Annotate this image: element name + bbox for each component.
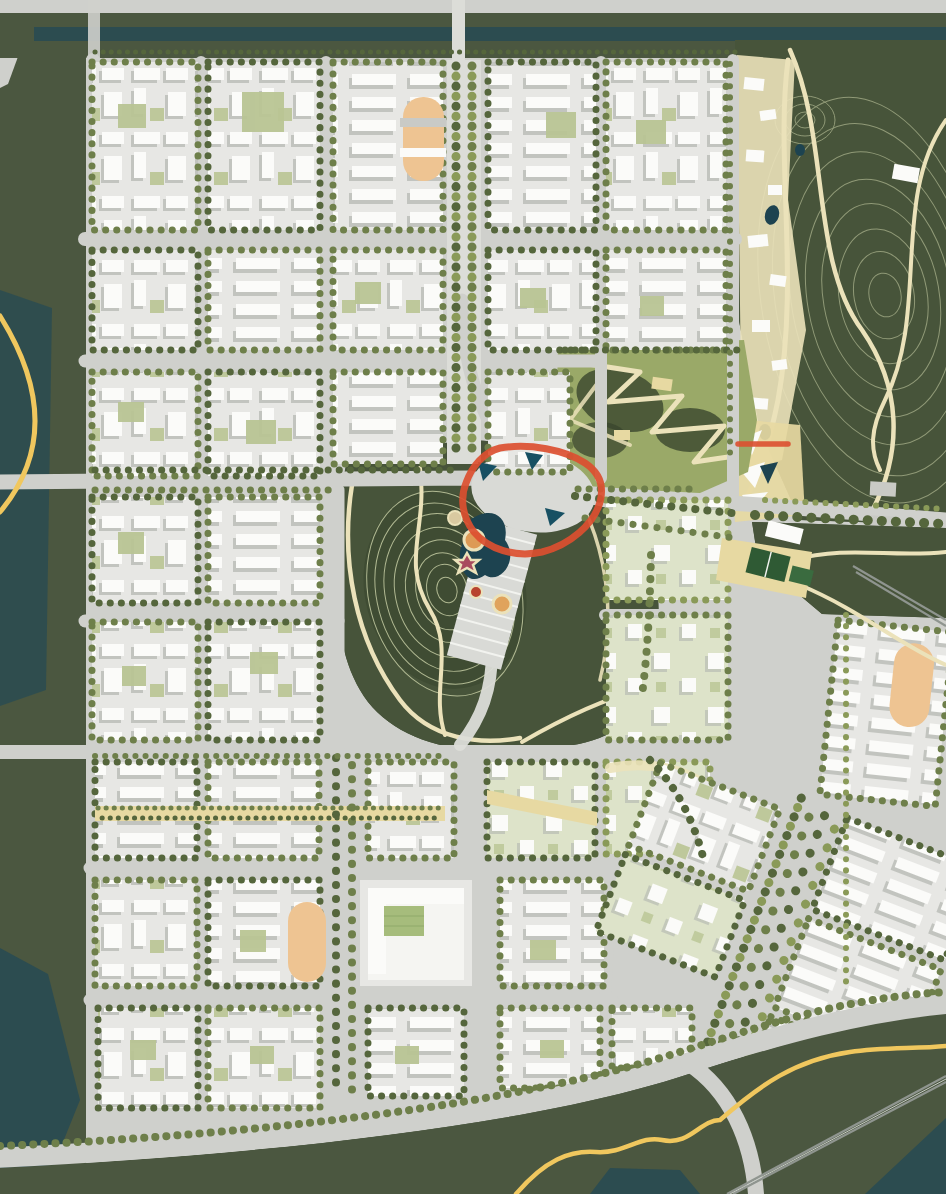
school-pitch [384, 906, 424, 936]
school-campus [360, 880, 472, 986]
city-block [95, 880, 197, 986]
city-block [606, 500, 728, 600]
city-block [92, 62, 198, 230]
road-platform [870, 481, 897, 496]
city-block [208, 250, 320, 350]
city-block [500, 880, 604, 986]
city-block [606, 62, 726, 230]
north-canal [34, 27, 946, 41]
playground-circle [493, 595, 511, 613]
city-block [92, 497, 198, 603]
city-block [333, 250, 443, 350]
east-sports-block [820, 620, 946, 806]
northeast-hill-park [726, 40, 946, 525]
running-track-southwest [288, 902, 326, 982]
pond [795, 144, 805, 156]
masterplan-rendering [0, 0, 946, 1194]
playground-circle [448, 511, 462, 525]
city-block [208, 497, 320, 603]
masterplan-map [0, 0, 946, 1194]
city-block [333, 372, 443, 464]
running-track-north [403, 97, 444, 181]
playground-circle [470, 586, 482, 598]
city-block [606, 250, 726, 350]
city-block [208, 62, 320, 230]
city-block [488, 62, 596, 230]
west-river-corridor [0, 10, 86, 1194]
city-block [208, 622, 320, 740]
city-block [606, 615, 728, 740]
north-edge-road [0, 0, 946, 13]
city-block [92, 250, 198, 350]
city-block [92, 372, 198, 476]
